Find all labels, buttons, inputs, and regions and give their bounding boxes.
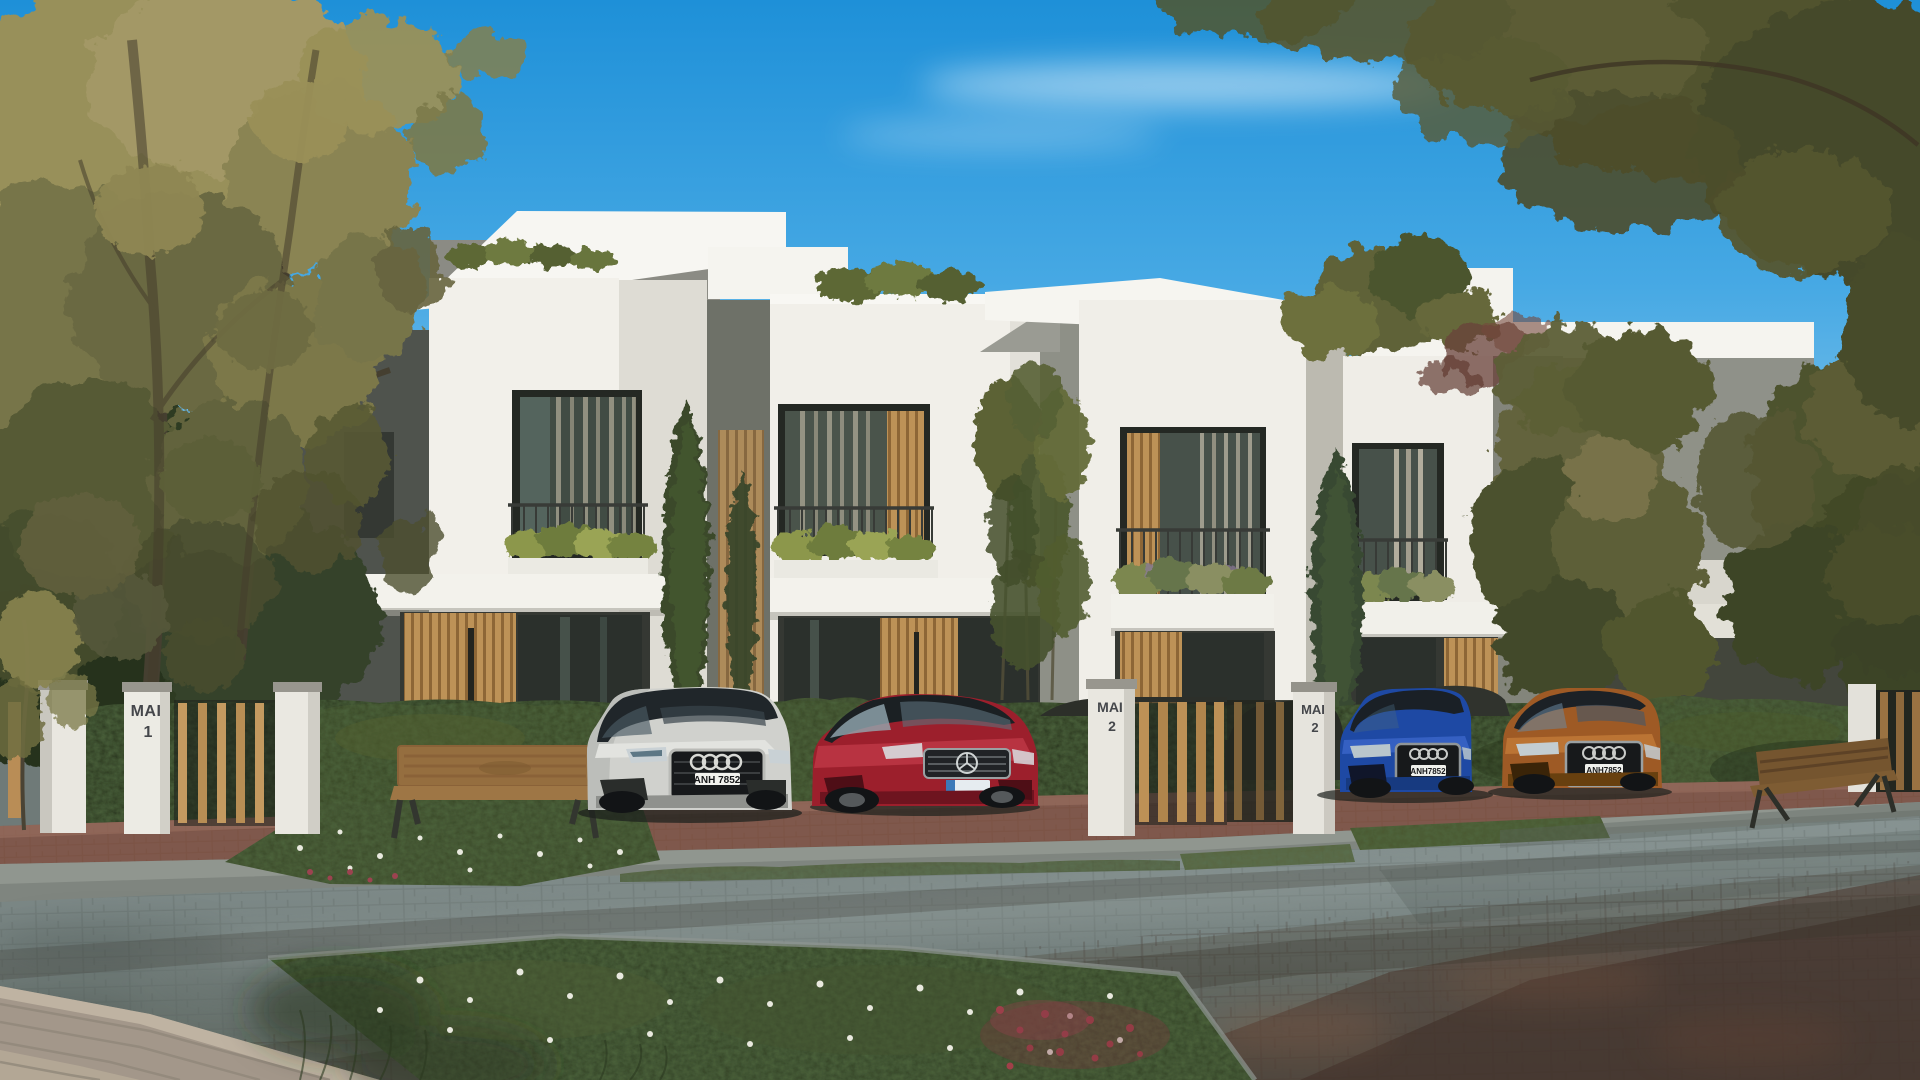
svg-text:ANH7852: ANH7852 bbox=[1410, 767, 1446, 776]
svg-text:2: 2 bbox=[1108, 718, 1116, 734]
svg-text:MAI: MAI bbox=[131, 703, 162, 720]
svg-text:MAI: MAI bbox=[1097, 699, 1123, 715]
svg-text:1: 1 bbox=[144, 724, 153, 741]
svg-text:MAI: MAI bbox=[1301, 702, 1325, 717]
svg-text:ANH 7852: ANH 7852 bbox=[694, 775, 741, 786]
svg-text:2: 2 bbox=[1311, 720, 1318, 735]
